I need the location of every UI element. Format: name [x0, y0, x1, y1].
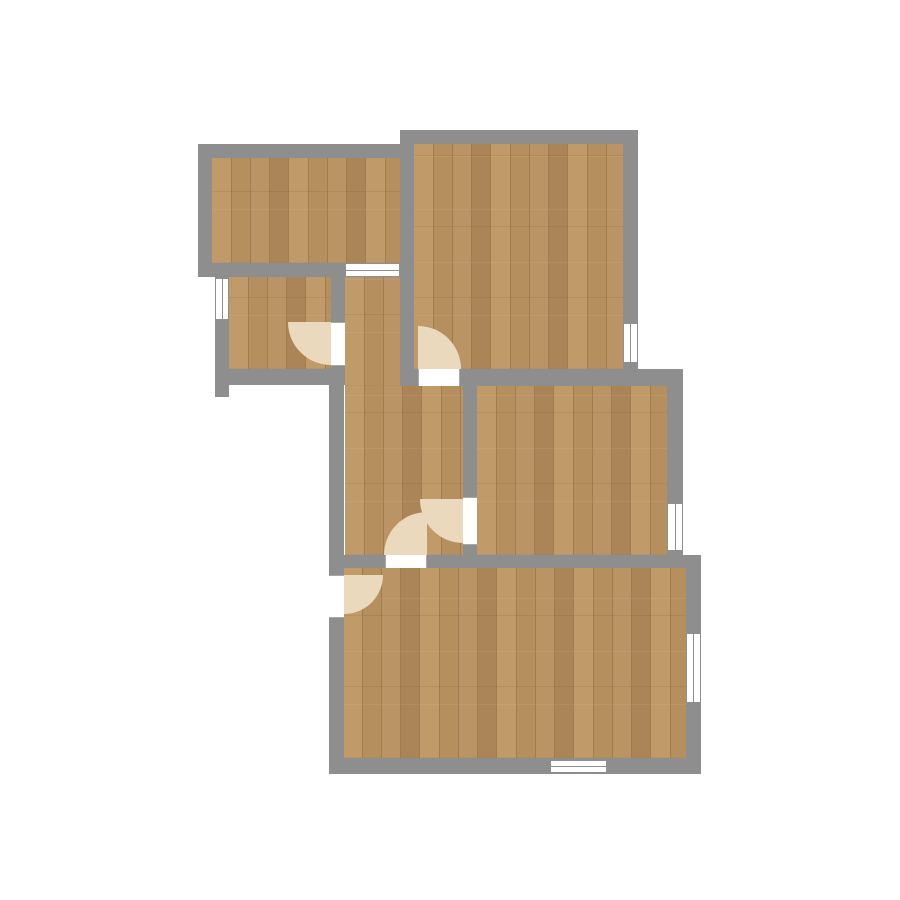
door-bottomroom-west — [329, 575, 344, 618]
door-smallroom-to-hall — [331, 322, 345, 366]
wall-left-exterior — [329, 369, 344, 774]
window-bottom-room-east — [686, 633, 701, 703]
door-hall-to-bottomroom — [385, 555, 427, 568]
floor-hall-upper — [345, 277, 400, 386]
door-topright-to-hall — [418, 369, 460, 386]
floor-room-middle-right — [477, 386, 667, 555]
window-top-right-room-east — [623, 323, 638, 363]
wall-bottom-exterior — [329, 758, 701, 774]
window-middle-right-room-east — [667, 503, 683, 551]
wall-top-right-room-top — [400, 130, 638, 144]
wall-divider-topleft-topright — [400, 130, 414, 386]
wall-small-room-bottom — [215, 369, 345, 385]
wall-top-left-room-left — [198, 144, 212, 277]
wall-top-left-room-top — [198, 144, 400, 158]
floor-room-top-left — [212, 158, 400, 263]
floor-room-bottom — [343, 568, 686, 758]
door-hall-to-middleright — [463, 497, 477, 545]
window-hall-top — [345, 263, 400, 277]
window-bottom-room-south — [550, 760, 607, 773]
window-small-room-west — [215, 278, 229, 320]
floor-plan — [0, 0, 900, 900]
